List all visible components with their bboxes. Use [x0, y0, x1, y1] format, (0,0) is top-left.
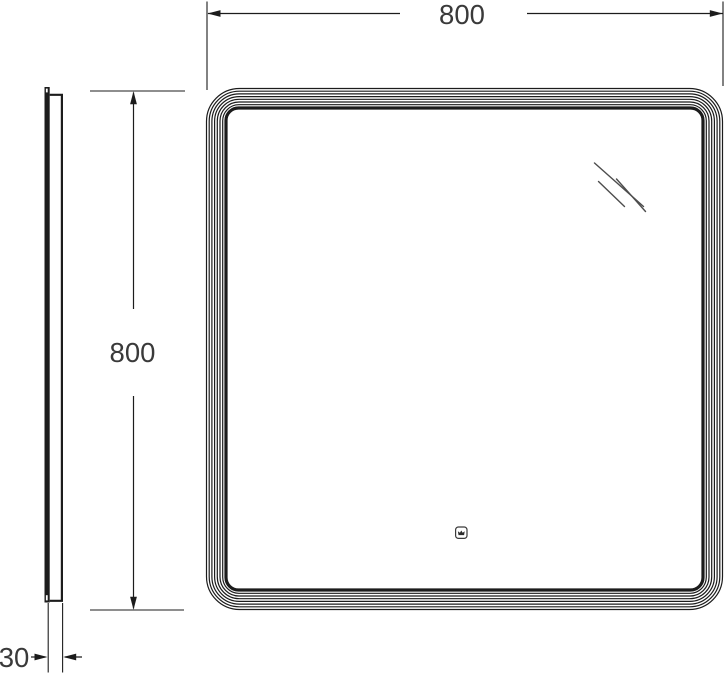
arrow-right-icon [35, 654, 48, 661]
mirror-side-view [45, 87, 62, 603]
arrow-left-icon [63, 654, 76, 661]
width-dimension-label: 800 [439, 0, 485, 30]
arrow-down-icon [130, 597, 137, 610]
glass-shine-icon [595, 163, 646, 212]
frame-line [223, 105, 707, 594]
touch-sensor-crown-icon [456, 527, 467, 538]
side-view-glass-panel [45, 87, 50, 603]
arrow-up-icon [130, 91, 137, 104]
side-view-back-frame [50, 95, 62, 601]
height-dimension: 800 [90, 91, 185, 610]
shine-stroke [617, 179, 646, 212]
height-dimension-label: 800 [110, 337, 156, 368]
mirror-dimension-drawing: 800 800 30 [0, 0, 725, 673]
arrow-right-icon [710, 10, 723, 17]
technical-drawing: 800 800 30 [0, 0, 725, 673]
depth-dimension-label: 30 [0, 642, 29, 673]
side-view-top-notch [46, 89, 48, 93]
frame-inner-edge [226, 108, 703, 590]
side-view-bottom-notch [46, 595, 48, 600]
frame-line [220, 102, 709, 596]
depth-dimension: 30 [0, 603, 82, 673]
mirror-front-view [207, 89, 723, 610]
frame-line [215, 97, 715, 602]
width-dimension: 800 [207, 0, 723, 90]
arrow-left-icon [208, 10, 221, 17]
frame-line [217, 99, 711, 598]
